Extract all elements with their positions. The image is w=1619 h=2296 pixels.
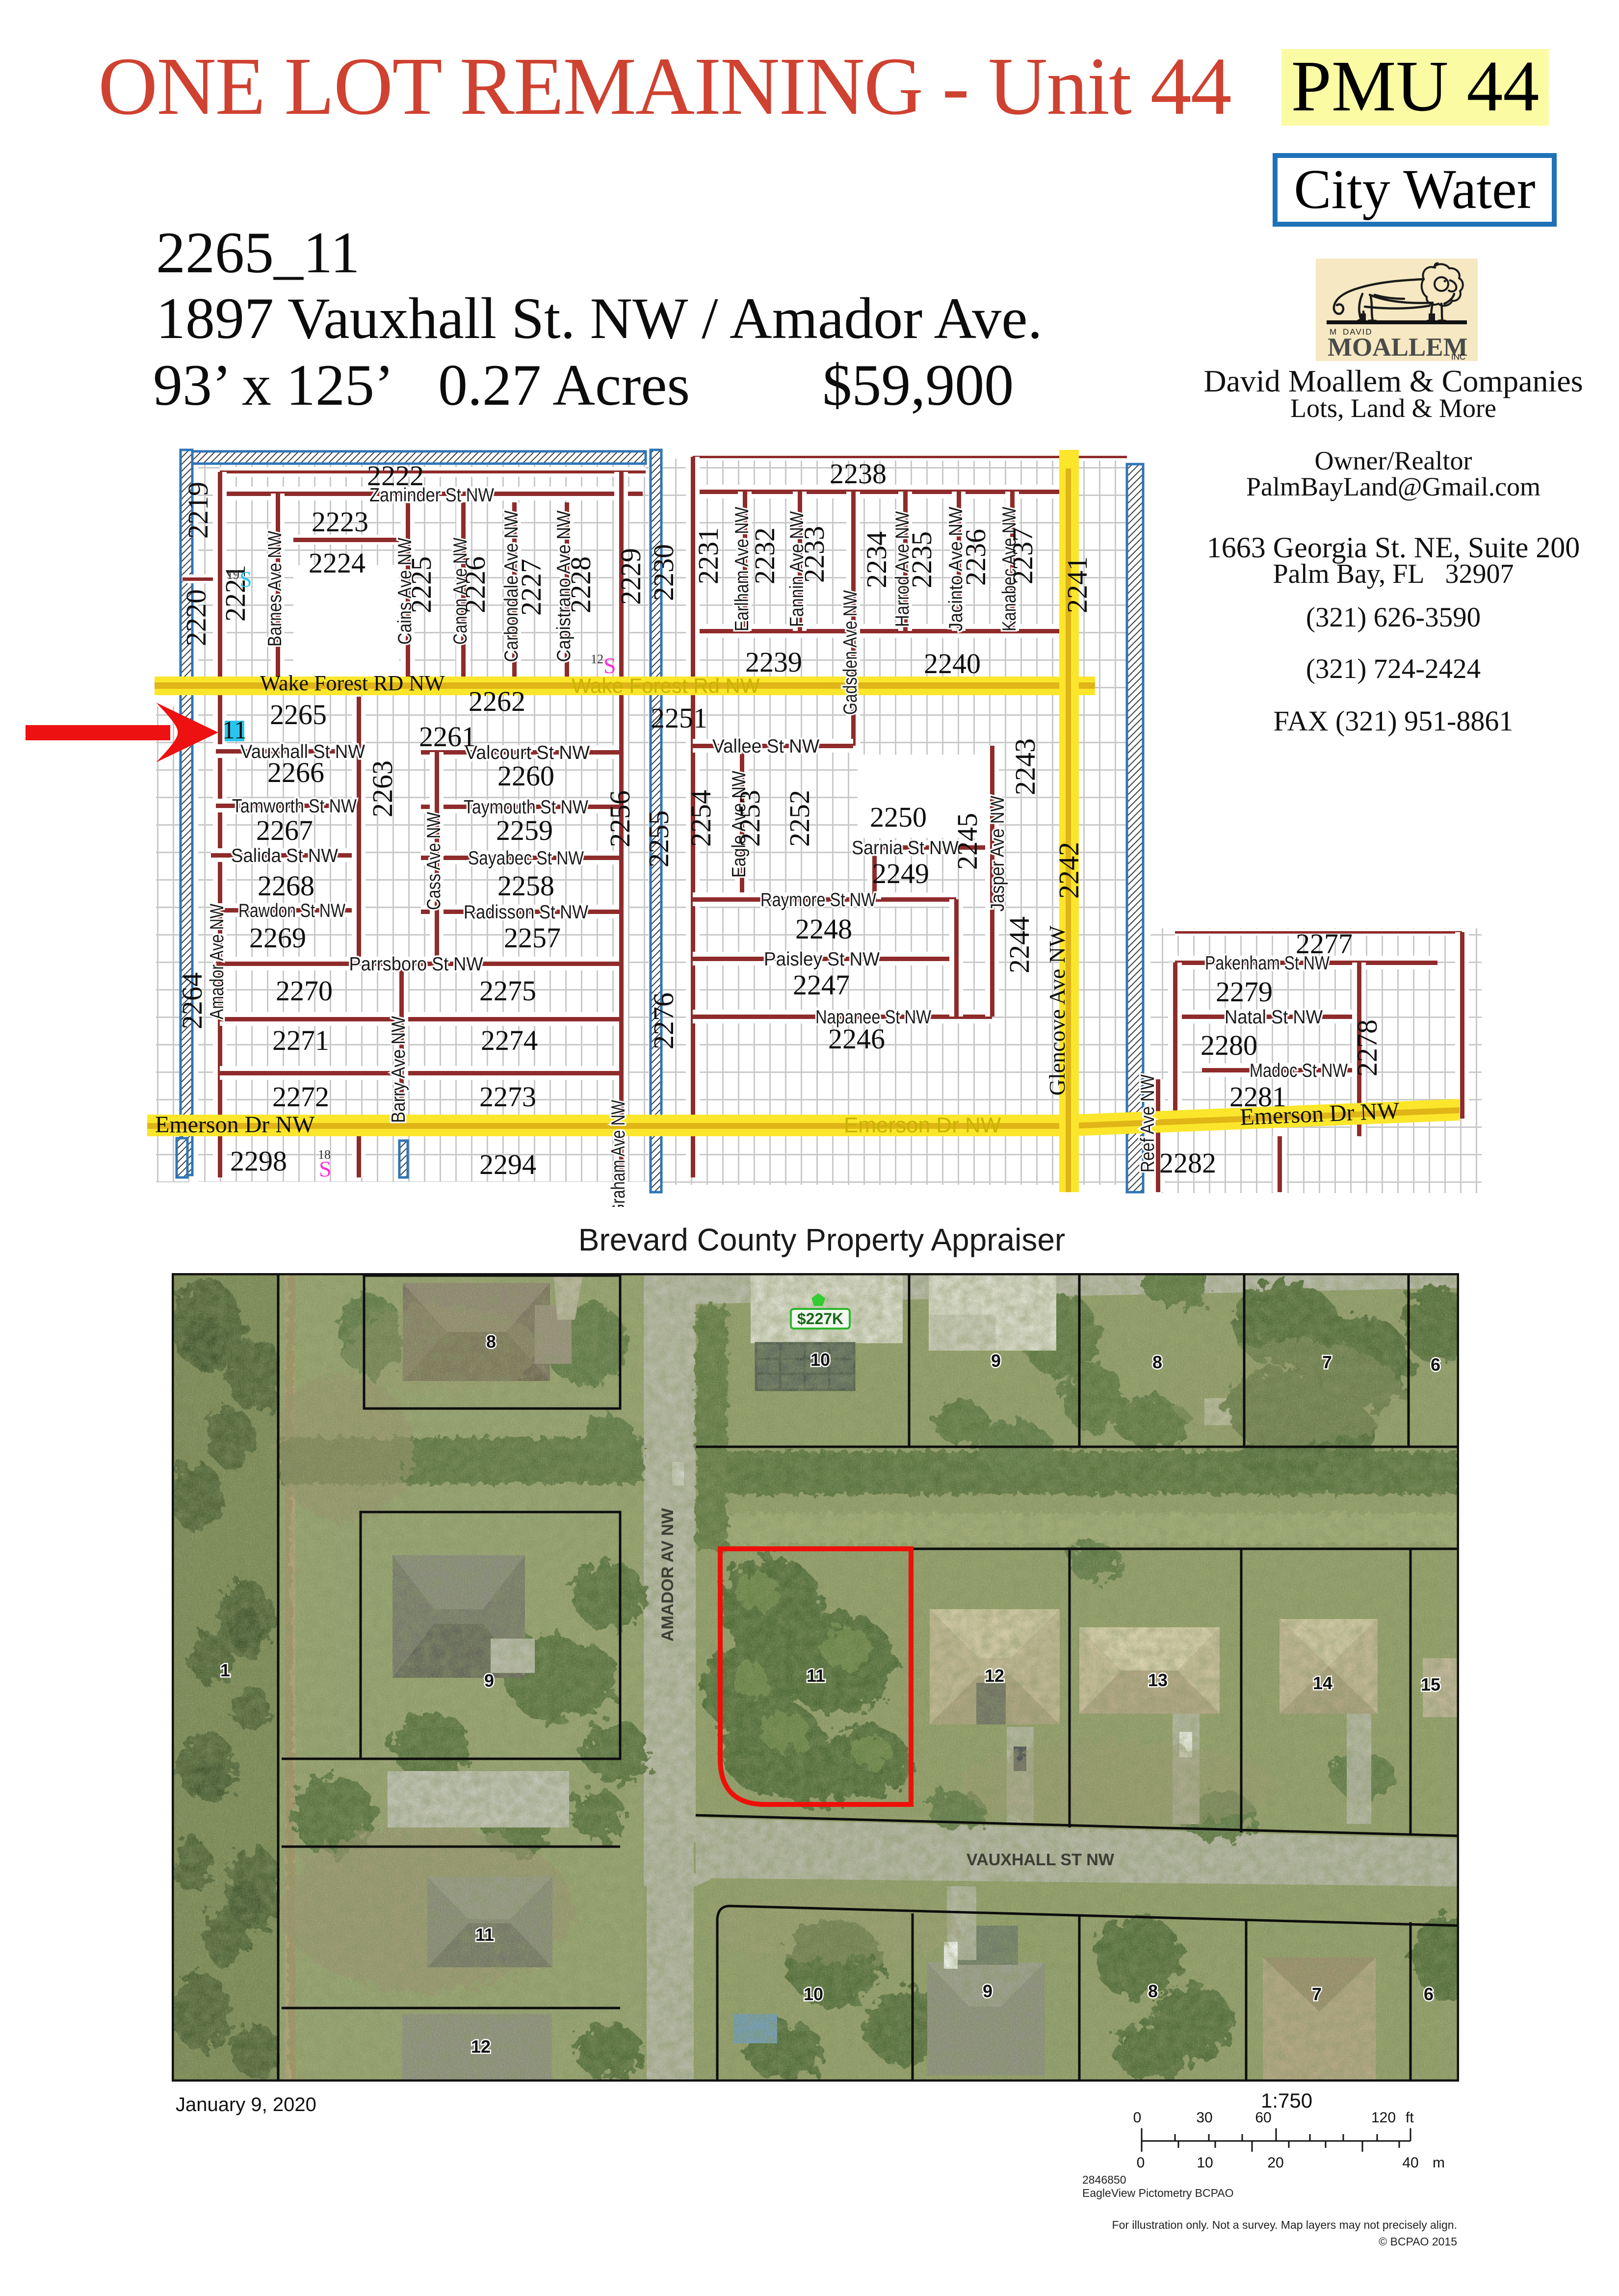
svg-text:2252: 2252 xyxy=(783,790,815,847)
svg-text:2257: 2257 xyxy=(504,922,561,954)
svg-text:2245: 2245 xyxy=(951,813,983,870)
svg-text:12: 12 xyxy=(591,652,603,666)
svg-text:11: 11 xyxy=(222,716,247,744)
svg-text:m: m xyxy=(1433,2155,1445,2171)
svg-text:2235: 2235 xyxy=(906,531,938,588)
svg-text:Rawdon St NW: Rawdon St NW xyxy=(238,900,345,921)
svg-text:2232: 2232 xyxy=(749,527,781,584)
svg-text:2237: 2237 xyxy=(1007,527,1039,584)
svg-text:2271: 2271 xyxy=(272,1024,329,1056)
svg-text:2273: 2273 xyxy=(479,1081,536,1113)
svg-text:7: 7 xyxy=(1322,1352,1332,1372)
svg-text:0: 0 xyxy=(1137,2155,1145,2171)
svg-text:Jasper Ave NW: Jasper Ave NW xyxy=(987,796,1008,912)
svg-text:2249: 2249 xyxy=(872,858,929,889)
svg-text:12: 12 xyxy=(985,1666,1004,1686)
svg-text:2251: 2251 xyxy=(651,702,707,734)
svg-text:6: 6 xyxy=(1431,1355,1440,1375)
svg-text:8: 8 xyxy=(1148,1981,1158,2001)
svg-text:2227: 2227 xyxy=(515,559,547,616)
svg-text:2242: 2242 xyxy=(1053,842,1085,899)
svg-text:2223: 2223 xyxy=(312,506,368,538)
svg-text:2225: 2225 xyxy=(405,556,437,613)
svg-text:2254: 2254 xyxy=(685,790,717,847)
svg-text:2278: 2278 xyxy=(1351,1019,1383,1076)
svg-text:2280: 2280 xyxy=(1201,1029,1257,1061)
svg-text:9: 9 xyxy=(991,1351,1001,1371)
svg-text:Radisson St NW: Radisson St NW xyxy=(464,902,588,923)
svg-text:2241: 2241 xyxy=(1061,556,1093,613)
svg-text:2268: 2268 xyxy=(258,870,314,902)
svg-text:INC: INC xyxy=(1451,352,1465,361)
svg-text:Glencove Ave NW: Glencove Ave NW xyxy=(1045,925,1070,1096)
svg-text:$227K: $227K xyxy=(797,1310,843,1328)
svg-text:S: S xyxy=(239,567,252,592)
svg-text:2262: 2262 xyxy=(469,685,525,717)
svg-text:11: 11 xyxy=(807,1666,825,1686)
svg-text:2230: 2230 xyxy=(648,544,679,601)
svg-text:2244: 2244 xyxy=(1003,916,1035,973)
svg-text:Natal St NW: Natal St NW xyxy=(1225,1007,1323,1028)
svg-text:2260: 2260 xyxy=(497,760,554,792)
svg-text:2239: 2239 xyxy=(745,646,802,678)
svg-text:2256: 2256 xyxy=(604,790,636,847)
svg-text:14: 14 xyxy=(1313,1673,1332,1693)
svg-text:Sarnia St NW: Sarnia St NW xyxy=(852,837,959,859)
svg-text:2263: 2263 xyxy=(366,760,398,817)
svg-text:2294: 2294 xyxy=(479,1148,536,1180)
svg-text:AMADOR AV NW: AMADOR AV NW xyxy=(658,1508,677,1642)
svg-text:Wake Forest Rd NW: Wake Forest Rd NW xyxy=(572,674,760,697)
svg-text:60: 60 xyxy=(1255,2110,1271,2126)
svg-text:2277: 2277 xyxy=(1296,928,1353,960)
svg-text:6: 6 xyxy=(1424,1984,1434,2004)
svg-text:2281: 2281 xyxy=(1229,1081,1286,1113)
svg-text:11: 11 xyxy=(475,1925,494,1945)
svg-text:120: 120 xyxy=(1371,2110,1396,2126)
svg-text:S: S xyxy=(319,1156,332,1181)
svg-text:2234: 2234 xyxy=(861,531,892,588)
svg-text:2233: 2233 xyxy=(798,526,830,583)
svg-text:2219: 2219 xyxy=(182,482,214,539)
svg-text:Barnes Ave NW: Barnes Ave NW xyxy=(264,531,286,647)
svg-text:VAUXHALL ST NW: VAUXHALL ST NW xyxy=(966,1851,1115,1869)
svg-text:Amador Ave NW: Amador Ave NW xyxy=(207,904,228,1019)
svg-text:2276: 2276 xyxy=(648,992,679,1049)
svg-text:S: S xyxy=(603,653,616,678)
svg-text:2275: 2275 xyxy=(479,975,536,1007)
svg-text:2229: 2229 xyxy=(615,548,647,605)
svg-text:2231: 2231 xyxy=(692,527,724,584)
svg-text:30: 30 xyxy=(1196,2110,1212,2126)
svg-text:MOALLEM: MOALLEM xyxy=(1328,333,1468,361)
svg-text:20: 20 xyxy=(1267,2155,1283,2171)
svg-text:10: 10 xyxy=(810,1350,830,1370)
svg-text:1: 1 xyxy=(220,1660,230,1680)
svg-text:2258: 2258 xyxy=(497,870,554,902)
svg-text:2250: 2250 xyxy=(870,801,927,833)
svg-text:2270: 2270 xyxy=(276,975,333,1007)
svg-text:Emerson Dr NW: Emerson Dr NW xyxy=(844,1113,1001,1137)
svg-text:8: 8 xyxy=(486,1331,496,1352)
svg-text:2282: 2282 xyxy=(1159,1147,1216,1179)
svg-text:2261: 2261 xyxy=(419,721,476,753)
svg-text:Madoc St NW: Madoc St NW xyxy=(1250,1060,1348,1081)
svg-text:2266: 2266 xyxy=(267,757,324,788)
svg-text:2272: 2272 xyxy=(272,1081,329,1113)
svg-text:15: 15 xyxy=(1421,1674,1440,1695)
svg-text:2255: 2255 xyxy=(643,810,675,867)
svg-text:2259: 2259 xyxy=(496,814,553,846)
svg-text:ft: ft xyxy=(1406,2110,1414,2126)
svg-text:2246: 2246 xyxy=(828,1023,885,1055)
svg-text:2220: 2220 xyxy=(180,589,212,646)
svg-text:2222: 2222 xyxy=(367,460,424,492)
svg-text:2265: 2265 xyxy=(270,699,327,731)
svg-text:2279: 2279 xyxy=(1216,976,1273,1008)
svg-text:12: 12 xyxy=(471,2036,491,2057)
svg-text:2267: 2267 xyxy=(256,814,313,846)
svg-text:19: 19 xyxy=(227,568,239,582)
svg-text:2238: 2238 xyxy=(830,458,887,490)
svg-text:2240: 2240 xyxy=(924,648,981,679)
svg-text:7: 7 xyxy=(1312,1984,1322,2004)
svg-text:8: 8 xyxy=(1152,1352,1162,1372)
svg-text:Emerson Dr NW: Emerson Dr NW xyxy=(155,1112,315,1138)
svg-text:Gadsden Ave NW: Gadsden Ave NW xyxy=(840,590,861,715)
svg-text:2248: 2248 xyxy=(795,913,852,945)
svg-text:40: 40 xyxy=(1402,2155,1418,2171)
svg-text:2274: 2274 xyxy=(481,1024,538,1056)
svg-text:2264: 2264 xyxy=(176,972,208,1029)
svg-text:Tamworth St NW: Tamworth St NW xyxy=(232,796,357,817)
svg-text:Salida St NW: Salida St NW xyxy=(231,845,338,866)
svg-text:9: 9 xyxy=(484,1670,494,1691)
svg-text:2236: 2236 xyxy=(960,529,992,586)
svg-text:2247: 2247 xyxy=(793,969,850,1001)
svg-text:Cass Ave NW: Cass Ave NW xyxy=(423,812,444,910)
svg-text:Graham Ave NW: Graham Ave NW xyxy=(608,1100,629,1207)
svg-text:Sayabec St NW: Sayabec St NW xyxy=(468,848,584,869)
svg-text:13: 13 xyxy=(1148,1670,1168,1690)
svg-text:2228: 2228 xyxy=(565,556,597,613)
svg-text:2226: 2226 xyxy=(459,556,491,613)
svg-text:2269: 2269 xyxy=(249,922,306,954)
svg-text:Paisley St NW: Paisley St NW xyxy=(764,949,880,970)
svg-text:Parrsboro St NW: Parrsboro St NW xyxy=(349,954,483,975)
svg-text:Reef Ave NW: Reef Ave NW xyxy=(1137,1074,1158,1173)
svg-text:Barry Ave NW: Barry Ave NW xyxy=(388,1016,409,1123)
svg-text:Vallee St NW: Vallee St NW xyxy=(712,736,819,757)
svg-text:2224: 2224 xyxy=(309,547,366,579)
svg-text:10: 10 xyxy=(804,1984,823,2004)
svg-text:2298: 2298 xyxy=(230,1145,287,1177)
svg-text:10: 10 xyxy=(1197,2155,1213,2171)
svg-text:2253: 2253 xyxy=(734,790,766,847)
svg-text:Wake Forest RD NW: Wake Forest RD NW xyxy=(260,671,445,695)
svg-text:Raymore St NW: Raymore St NW xyxy=(760,889,876,911)
svg-text:0: 0 xyxy=(1133,2110,1142,2126)
svg-text:2243: 2243 xyxy=(1009,738,1041,795)
svg-text:9: 9 xyxy=(983,1981,992,2001)
